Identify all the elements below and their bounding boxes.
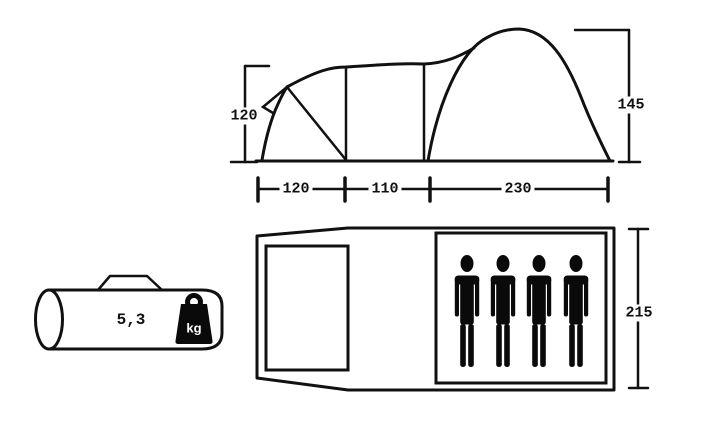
bag-weight-value: 5,3 <box>117 312 146 328</box>
side-view-drawing <box>231 29 640 201</box>
bag-handle <box>98 276 162 290</box>
base-width-label-1: 120 <box>279 181 312 198</box>
tent-dome-arch <box>428 29 610 161</box>
tent-side-outline <box>256 29 613 161</box>
base-width-label-3: 230 <box>501 181 534 198</box>
bag-weight-unit: kg <box>186 322 201 335</box>
tent-seam-diagonal <box>287 87 346 160</box>
height-right-label: 145 <box>614 97 647 114</box>
diagram-artwork <box>0 0 720 429</box>
depth-label: 215 <box>622 305 655 322</box>
floor-plan-drawing <box>257 228 648 390</box>
tent-ridge-curve <box>287 48 474 87</box>
base-width-label-2: 110 <box>368 181 401 198</box>
tent-dimensions-diagram: 120 145 120 110 230 215 5,3 kg <box>0 0 720 429</box>
height-left-label: 120 <box>227 108 260 125</box>
bag-end-cap <box>36 290 63 349</box>
